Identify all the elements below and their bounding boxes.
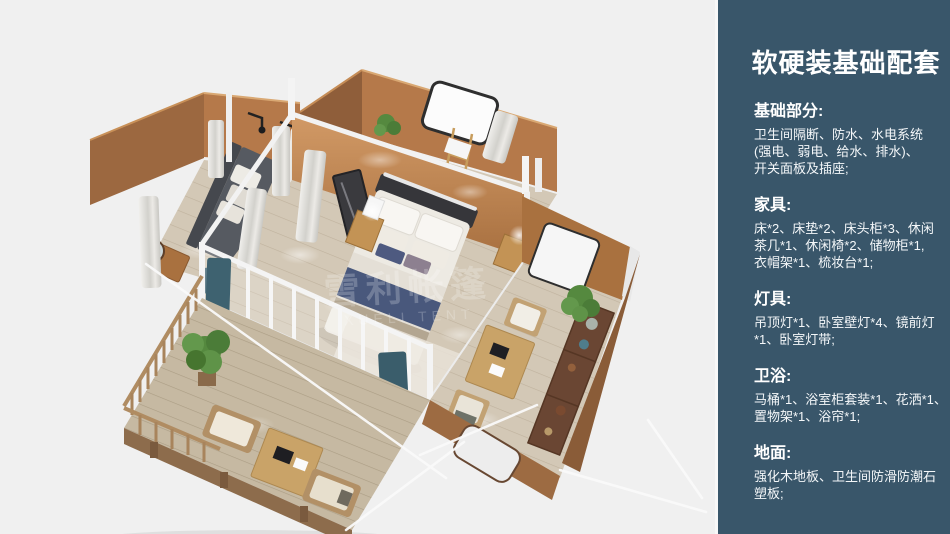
- section-line: 塑板;: [754, 485, 946, 502]
- tent-floorplan-render: 雪利帐篷 XUELI TENT: [0, 0, 718, 534]
- section-line: 茶几*1、休闲椅*2、储物柜*1,: [754, 237, 946, 254]
- section-line: 马桶*1、浴室柜套装*1、花洒*1、: [754, 391, 946, 408]
- section-furniture: 家具: 床*2、床垫*2、床头柜*3、休闲 茶几*1、休闲椅*2、储物柜*1, …: [754, 196, 946, 271]
- section-line: 置物架*1、浴帘*1;: [754, 408, 946, 425]
- section-line: 床*2、床垫*2、床头柜*3、休闲: [754, 220, 946, 237]
- section-line: *1、卧室灯带;: [754, 331, 946, 348]
- section-line: 吊顶灯*1、卧室壁灯*4、镜前灯: [754, 314, 946, 331]
- section-heading: 基础部分:: [754, 102, 946, 122]
- render-area: 雪利帐篷 XUELI TENT: [0, 0, 718, 534]
- spec-panel: 软硬装基础配套 基础部分: 卫生间隔断、防水、水电系统 (强电、弱电、给水、排水…: [715, 0, 950, 534]
- section-heading: 卫浴:: [754, 367, 946, 387]
- section-heading: 灯具:: [754, 290, 946, 310]
- section-basics: 基础部分: 卫生间隔断、防水、水电系统 (强电、弱电、给水、排水)、 开关面板及…: [754, 102, 946, 177]
- panel-title: 软硬装基础配套: [740, 46, 950, 80]
- section-lighting: 灯具: 吊顶灯*1、卧室壁灯*4、镜前灯 *1、卧室灯带;: [754, 290, 946, 348]
- section-line: 开关面板及插座;: [754, 160, 946, 177]
- corner-post: [226, 92, 232, 162]
- corner-post: [535, 158, 542, 192]
- section-floor: 地面: 强化木地板、卫生间防滑防潮石 塑板;: [754, 444, 946, 502]
- section-heading: 地面:: [754, 444, 946, 464]
- section-bathroom: 卫浴: 马桶*1、浴室柜套装*1、花洒*1、 置物架*1、浴帘*1;: [754, 367, 946, 425]
- slide: 雪利帐篷 XUELI TENT 软硬装基础配套 基础部分: 卫生间隔断、防水、水…: [0, 0, 950, 534]
- section-heading: 家具:: [754, 196, 946, 216]
- section-line: 卫生间隔断、防水、水电系统: [754, 126, 946, 143]
- watermark-cn: 雪利帐篷: [323, 263, 493, 313]
- ground-shadow: [90, 530, 410, 534]
- section-line: (强电、弱电、给水、排水)、: [754, 143, 946, 160]
- watermark: 雪利帐篷 XUELI TENT: [323, 263, 494, 330]
- section-line: 强化木地板、卫生间防滑防潮石: [754, 468, 946, 485]
- section-line: 衣帽架*1、梳妆台*1;: [754, 254, 946, 271]
